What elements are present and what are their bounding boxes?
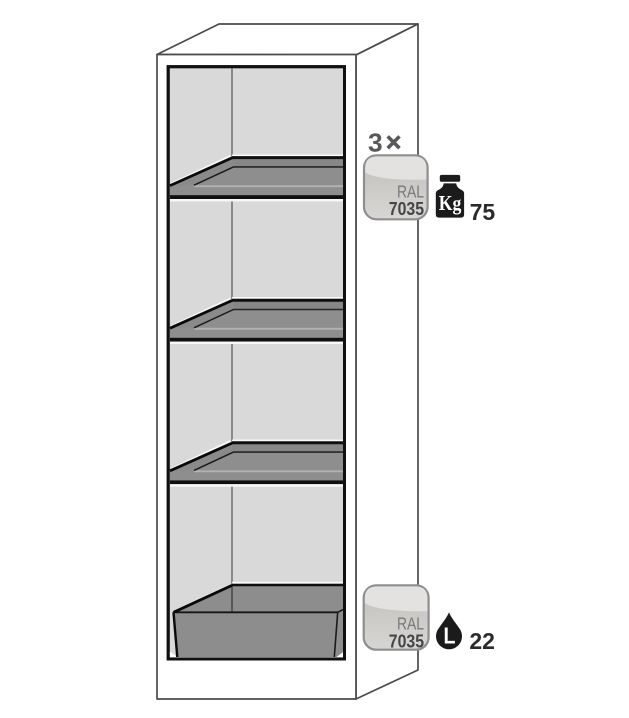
svg-text:L: L xyxy=(444,623,456,649)
svg-text:7035: 7035 xyxy=(389,630,424,651)
svg-text:75: 75 xyxy=(470,199,496,225)
svg-text:3: 3 xyxy=(368,127,383,157)
svg-text:Kg: Kg xyxy=(439,191,462,215)
svg-text:22: 22 xyxy=(469,628,495,654)
svg-text:7035: 7035 xyxy=(389,198,424,219)
